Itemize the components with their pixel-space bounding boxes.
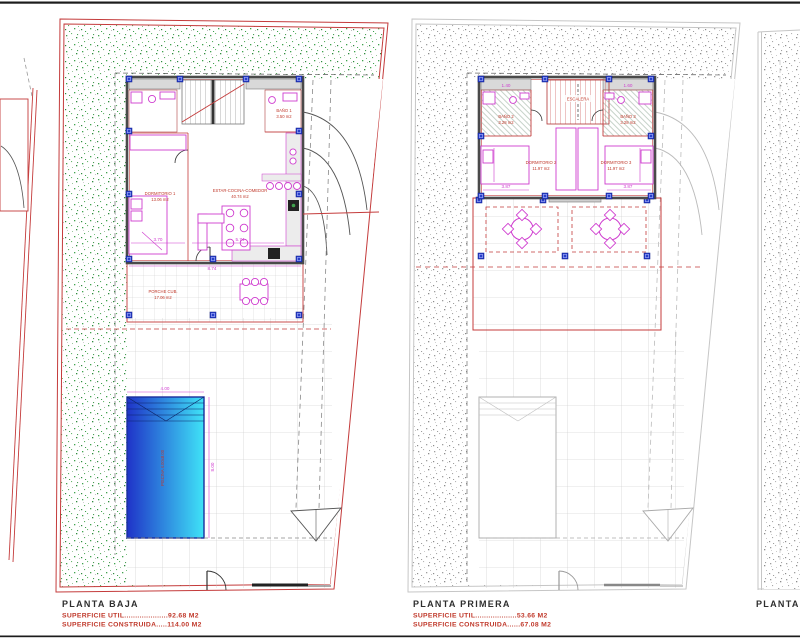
svg-text:5.74: 5.74 xyxy=(236,237,245,242)
svg-text:BAÑO 1: BAÑO 1 xyxy=(276,108,292,113)
titles: PLANTA BAJA SUPERFICIE UTIL.............… xyxy=(62,599,800,629)
plan-right-partial xyxy=(758,30,800,590)
swimming-pool: PISCINA 4.00x8.00 4.00 8.00 xyxy=(127,386,215,538)
svg-text:13.06 m2: 13.06 m2 xyxy=(151,197,169,202)
dormitorio3: DORMITORIO 3 11.97 m2 xyxy=(601,146,653,184)
garden-gray-partial xyxy=(764,33,800,589)
svg-text:3.28 m2: 3.28 m2 xyxy=(498,120,514,125)
svg-text:1.40: 1.40 xyxy=(502,83,511,88)
planta-partial-title: PLANTA xyxy=(756,599,800,609)
sheet-top-border xyxy=(0,2,800,4)
svg-text:3.28 m2: 3.28 m2 xyxy=(620,120,636,125)
svg-text:DORMITORIO 2: DORMITORIO 2 xyxy=(526,160,557,165)
planta-baja-title: PLANTA BAJA xyxy=(62,599,139,609)
planta-baja-superficie-util: SUPERFICIE UTIL....................92.68… xyxy=(62,613,199,620)
pool-label: PISCINA 4.00x8.00 xyxy=(160,449,165,486)
porch-label: PORCHE CUB. xyxy=(148,289,177,294)
bathroom-ground xyxy=(129,90,177,132)
porch-area: 17.06 m2 xyxy=(154,295,172,300)
sheet-bottom-border xyxy=(0,636,800,638)
svg-text:ESTAR-COCINA-COMEDOR: ESTAR-COCINA-COMEDOR xyxy=(213,188,268,193)
svg-text:11.97 m2: 11.97 m2 xyxy=(532,166,550,171)
partial-gate-box xyxy=(0,99,28,211)
svg-text:ESCALERA: ESCALERA xyxy=(567,97,590,102)
planta-primera-superficie-construida: SUPERFICIE CONSTRUIDA......67.08 M2 xyxy=(413,622,551,629)
svg-text:BAÑO 2: BAÑO 2 xyxy=(498,114,514,119)
house-first-floor: ESCALERA BAÑO 2 3.28 m2 BAÑO 3 3.28 m2 xyxy=(478,76,655,199)
pool-width-dim: 4.00 xyxy=(161,386,170,391)
floor-plan-canvas: PORCHE CUB. 17.06 m2 8.74 xyxy=(0,0,800,640)
svg-text:DORMITORIO 1: DORMITORIO 1 xyxy=(145,191,176,196)
planta-baja-superficie-construida: SUPERFICIE CONSTRUIDA.....114.00 M2 xyxy=(62,622,202,629)
planta-primera-superficie-util: SUPERFICIE UTIL...................53.66 … xyxy=(413,613,548,620)
bano1: BAÑO 1 3.50 m2 xyxy=(265,90,301,132)
svg-text:DORMITORIO 3: DORMITORIO 3 xyxy=(601,160,632,165)
svg-text:3.87: 3.87 xyxy=(502,184,511,189)
svg-text:1.60: 1.60 xyxy=(624,83,633,88)
svg-text:BAÑO 3: BAÑO 3 xyxy=(620,114,636,119)
plan-left-partial xyxy=(0,58,37,562)
svg-text:3.87: 3.87 xyxy=(624,184,633,189)
svg-text:11.97 m2: 11.97 m2 xyxy=(607,166,625,171)
stairs-first: ESCALERA xyxy=(547,80,609,124)
pool-height-dim: 8.00 xyxy=(210,462,215,471)
svg-text:3.70: 3.70 xyxy=(154,237,163,242)
planta-primera-title: PLANTA PRIMERA xyxy=(413,599,511,609)
bano2: BAÑO 2 3.28 m2 xyxy=(481,90,531,136)
svg-text:40.74 m2: 40.74 m2 xyxy=(231,194,249,199)
svg-text:3.50 m2: 3.50 m2 xyxy=(276,114,292,119)
stairs-ground xyxy=(182,80,244,124)
porch-width-dim: 8.74 xyxy=(208,266,217,271)
porch-table xyxy=(240,278,268,304)
house-ground-floor: BAÑO 1 3.50 m2 DORMITORIO 1 13.06 m2 xyxy=(127,77,303,263)
bano3: BAÑO 3 3.28 m2 xyxy=(603,90,653,136)
planta-baja-plan: PORCHE CUB. 17.06 m2 8.74 xyxy=(56,19,388,592)
planta-primera-plan: ESCALERA BAÑO 2 3.28 m2 BAÑO 3 3.28 m2 xyxy=(408,19,740,592)
drawing-sheet: PORCHE CUB. 17.06 m2 8.74 xyxy=(0,0,800,640)
